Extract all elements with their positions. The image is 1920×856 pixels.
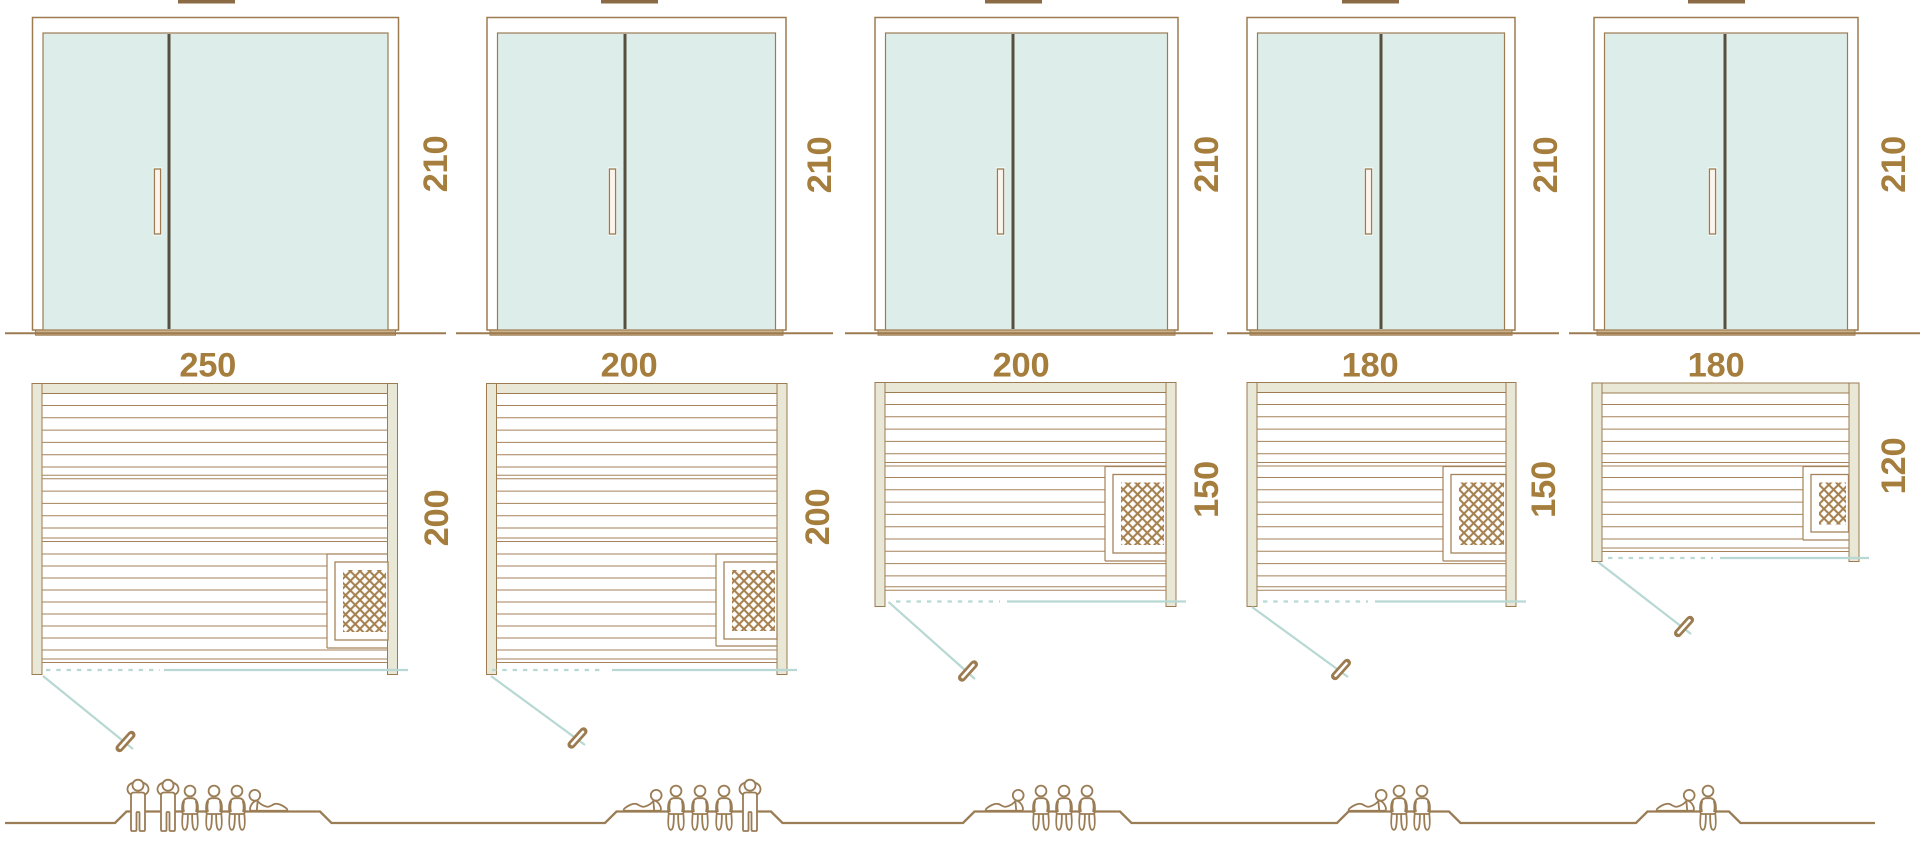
svg-text:180: 180 <box>1342 347 1399 385</box>
svg-text:210: 210 <box>1875 136 1913 193</box>
svg-text:180: 180 <box>1688 347 1745 385</box>
svg-text:150: 150 <box>1525 461 1563 518</box>
svg-text:210: 210 <box>801 137 839 194</box>
svg-text:250: 250 <box>179 347 236 385</box>
svg-text:200: 200 <box>601 347 658 385</box>
svg-text:120: 120 <box>1875 438 1913 495</box>
svg-text:210: 210 <box>1188 136 1226 193</box>
svg-text:210: 210 <box>417 136 455 193</box>
svg-text:200: 200 <box>993 347 1050 385</box>
svg-text:150: 150 <box>1188 461 1226 518</box>
svg-text:210: 210 <box>1527 137 1565 194</box>
svg-text:200: 200 <box>418 490 456 547</box>
svg-text:200: 200 <box>799 489 837 546</box>
